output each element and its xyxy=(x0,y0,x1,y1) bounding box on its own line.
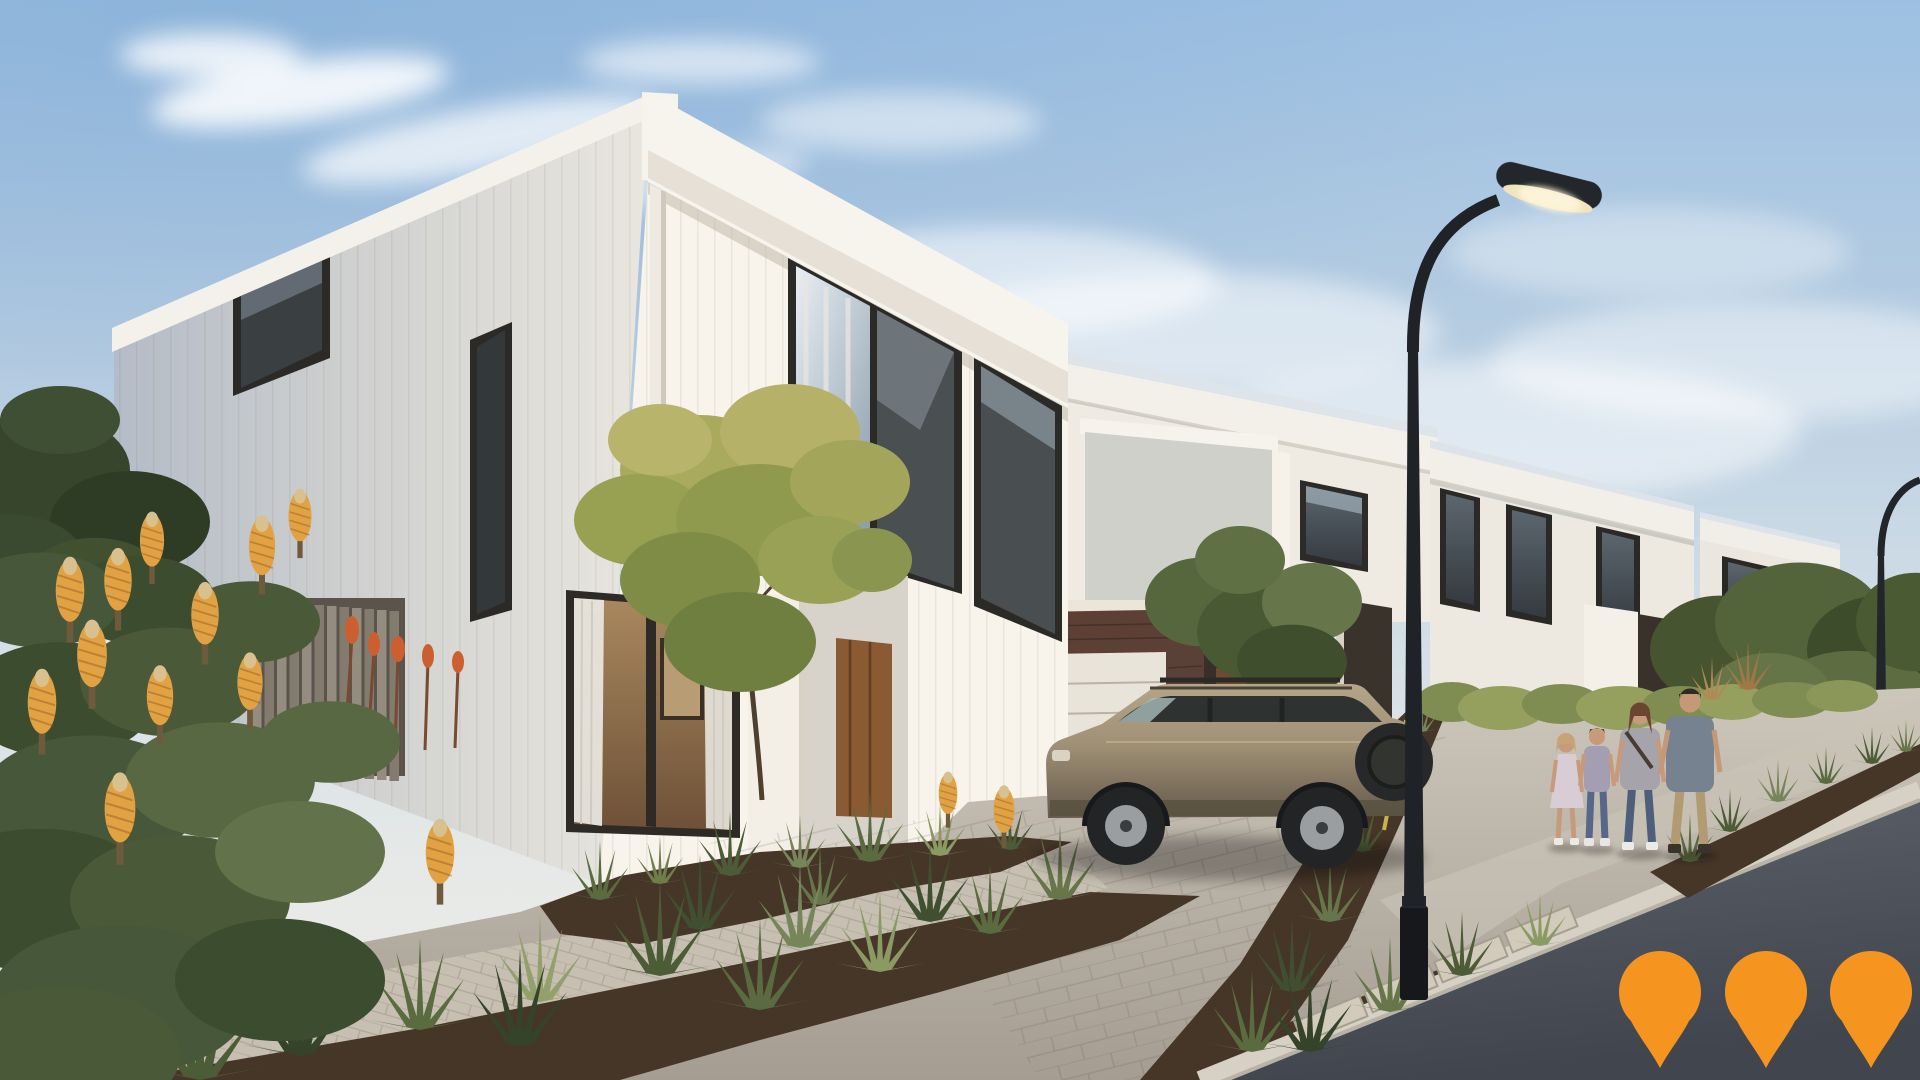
scene-image: Townhouse development streetscape render xyxy=(0,0,1920,1080)
streetscape-render: Townhouse development streetscape render xyxy=(0,0,1920,1080)
suv-headlight xyxy=(1052,750,1070,761)
suv-rear-wheel xyxy=(1281,787,1363,869)
location-pins xyxy=(1619,951,1912,1068)
middle-upper-window xyxy=(1300,480,1368,572)
lamp-base xyxy=(1400,906,1428,1000)
main-upper-window-b xyxy=(974,358,1062,642)
suv-front-wheel xyxy=(1087,787,1165,865)
main-entry-door xyxy=(836,638,892,818)
main-stair-window xyxy=(470,322,512,622)
